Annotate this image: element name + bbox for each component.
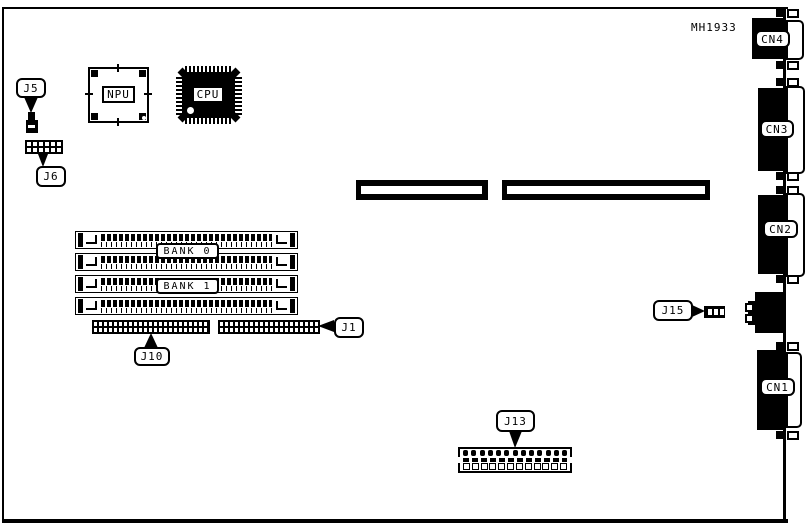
- j13-pin-bump: [488, 450, 493, 456]
- simm-comb-top: [101, 234, 272, 241]
- npu-corner-mark: [139, 70, 146, 77]
- mount-tab: [776, 342, 783, 350]
- j13-pin-bump: [562, 450, 567, 456]
- j10-label: J10: [134, 347, 170, 366]
- j6-pin-cell: [45, 148, 49, 152]
- j10-pin-row: [94, 322, 208, 326]
- cn2-label: CN2: [763, 220, 798, 238]
- j15-pin-cell: [708, 309, 712, 315]
- j13-pin-bump: [554, 450, 559, 456]
- j13-pin-bump: [513, 450, 518, 456]
- j10-pointer: [144, 333, 158, 348]
- mount-tab: [776, 61, 783, 69]
- simm-hook-r: [276, 279, 287, 288]
- bank0-label: BANK 0: [156, 243, 219, 259]
- j13-pin-bump: [480, 450, 485, 456]
- j13-pin-bump: [521, 450, 526, 456]
- j13-pin-bump: [504, 450, 509, 456]
- simm-comb-bot: [101, 264, 272, 269]
- j13-pointer: [509, 431, 522, 448]
- j1-pin-row: [220, 322, 318, 326]
- mount-tab: [787, 61, 799, 70]
- j13-cell: [525, 463, 532, 470]
- j13-pin-bump: [546, 450, 551, 456]
- npu-pin1-dot: [142, 116, 146, 120]
- npu-corner-mark: [91, 70, 98, 77]
- j15-pin-cell: [714, 309, 718, 315]
- j6-pin-cell: [57, 142, 61, 146]
- j6-pin-cell: [27, 142, 31, 146]
- board-edge-top: [2, 7, 788, 9]
- mount-tab: [776, 172, 783, 180]
- simm-hook-r: [276, 257, 287, 266]
- j13-contact-row: [463, 458, 567, 462]
- board-code-text: MH1933: [691, 21, 737, 34]
- mount-tab: [787, 78, 799, 87]
- mount-tab: [776, 186, 783, 194]
- simm-hook-r: [276, 301, 287, 310]
- cn1-label: CN1: [760, 378, 795, 396]
- expansion-slot-opening: [507, 186, 705, 194]
- mount-tab: [787, 172, 799, 181]
- board-edge-bottom: [2, 519, 788, 523]
- simm-bar-l: [78, 233, 83, 247]
- simm-bar-r: [290, 255, 295, 269]
- j15-pin-cell: [720, 309, 724, 315]
- simm-hook-l: [86, 279, 97, 288]
- j13-cell: [560, 463, 567, 470]
- simm-bar-r: [290, 233, 295, 247]
- npu-edge-tick: [144, 93, 152, 95]
- j1-pin-header: [218, 320, 320, 334]
- mount-tab: [776, 78, 783, 86]
- j13-pin-bump: [463, 450, 468, 456]
- j10-pin1-marker: [94, 329, 97, 332]
- j6-pin-cell: [33, 142, 37, 146]
- j13-cell: [498, 463, 505, 470]
- keyboard-din-notch: [745, 303, 754, 312]
- j13-cell: [472, 463, 479, 470]
- j5-label: J5: [16, 78, 46, 98]
- j6-pin-cell: [45, 142, 49, 146]
- npu-edge-tick: [85, 93, 93, 95]
- board-edge-left: [2, 7, 4, 521]
- j10-pin-row: [94, 328, 208, 332]
- simm-bar-r: [290, 299, 295, 313]
- cn4-label: CN4: [755, 30, 790, 48]
- j13-cell: [551, 463, 558, 470]
- j6-pin-cell: [57, 148, 61, 152]
- j13-cell: [534, 463, 541, 470]
- mount-tab: [787, 186, 799, 195]
- j13-connector: [458, 447, 572, 473]
- j5-connector-gap: [28, 125, 35, 128]
- j6-label: J6: [36, 166, 66, 187]
- j13-pin-bump: [529, 450, 534, 456]
- j6-pin-cell: [51, 148, 55, 152]
- j6-pin-cell: [39, 148, 43, 152]
- j13-pin-bump: [537, 450, 542, 456]
- simm-hook-l: [86, 301, 97, 310]
- keyboard-din-notch: [745, 314, 754, 323]
- mount-tab: [787, 342, 799, 351]
- cn3-label: CN3: [760, 120, 794, 138]
- j13-cell: [507, 463, 514, 470]
- j13-cell: [542, 463, 549, 470]
- mount-tab: [787, 431, 799, 440]
- j6-pin-cell: [51, 142, 55, 146]
- mount-tab: [776, 431, 783, 439]
- j13-end-notch: [569, 457, 574, 463]
- bank1-label: BANK 1: [156, 278, 219, 294]
- mount-tab: [787, 9, 799, 18]
- simm-hook-l: [86, 235, 97, 244]
- mount-tab: [776, 275, 783, 283]
- simm-hook-l: [86, 257, 97, 266]
- simm-comb-bot: [101, 308, 272, 313]
- j5-connector-pin: [28, 112, 35, 120]
- mount-tab: [787, 275, 799, 284]
- j13-pin-bump: [496, 450, 501, 456]
- simm-bar-l: [78, 299, 83, 313]
- j6-pin-cell: [27, 148, 31, 152]
- j1-label: J1: [334, 317, 364, 338]
- npu-edge-tick: [117, 118, 119, 126]
- j1-pin1-marker: [220, 329, 223, 332]
- npu-label: NPU: [102, 86, 135, 103]
- j15-label: J15: [653, 300, 693, 321]
- j6-pin-cell: [33, 148, 37, 152]
- j1-pin-row: [220, 328, 318, 332]
- j13-cell: [481, 463, 488, 470]
- simm-hook-r: [276, 235, 287, 244]
- keyboard-din-connector: [755, 292, 784, 333]
- j13-pin-bump: [471, 450, 476, 456]
- j13-label: J13: [496, 410, 535, 432]
- npu-edge-tick: [117, 64, 119, 72]
- expansion-slot-opening: [361, 186, 482, 194]
- j13-end-notch: [456, 457, 461, 463]
- simm-bar-r: [290, 277, 295, 291]
- cpu-chip: CPU: [176, 66, 242, 124]
- simm-bar-l: [78, 255, 83, 269]
- npu-chip: NPU: [88, 67, 149, 123]
- j6-pin-cell: [39, 142, 43, 146]
- simm-socket: [75, 297, 298, 315]
- simm-bar-l: [78, 277, 83, 291]
- cpu-pins-right: [235, 75, 242, 115]
- j6-pin-header: [25, 140, 63, 154]
- cpu-pin1-dot: [187, 107, 194, 114]
- j10-pin-header: [92, 320, 210, 334]
- j1-pointer: [318, 320, 334, 332]
- cpu-label: CPU: [192, 86, 224, 103]
- j15-connector: [704, 306, 725, 318]
- mount-tab: [776, 9, 783, 17]
- cpu-pins-bottom: [185, 117, 233, 124]
- j13-cell: [463, 463, 470, 470]
- j13-cell: [489, 463, 496, 470]
- j13-cell: [516, 463, 523, 470]
- motherboard-diagram: MH1933 NPU CPU J5: [0, 0, 807, 527]
- j5-pointer: [24, 97, 38, 113]
- j13-bottom-cells: [463, 463, 567, 470]
- npu-corner-mark: [91, 113, 98, 120]
- j13-top-pins: [463, 450, 567, 456]
- simm-comb-top: [101, 300, 272, 307]
